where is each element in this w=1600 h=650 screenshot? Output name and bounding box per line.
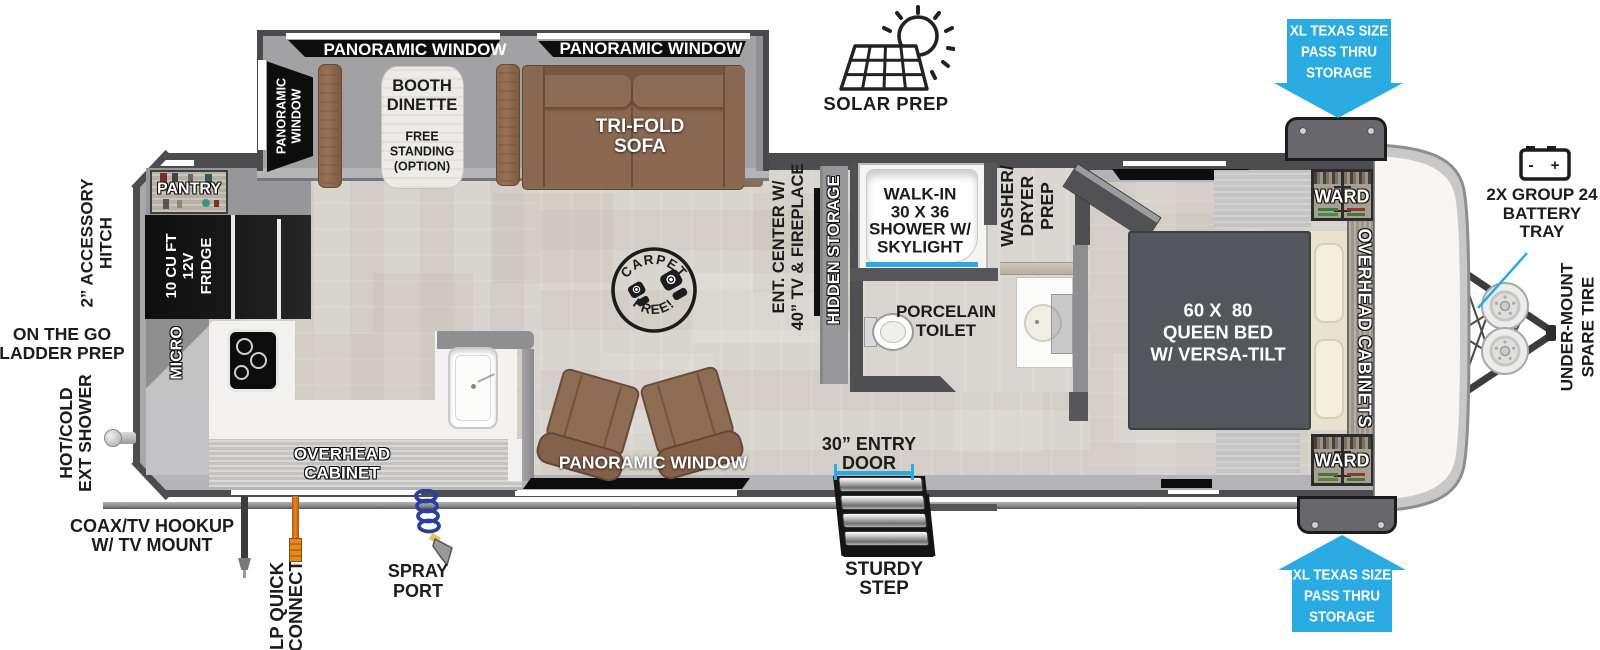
svg-text:+: + (1551, 157, 1560, 174)
svg-text:FREE!: FREE! (630, 295, 677, 317)
svg-text:-: - (1528, 157, 1533, 174)
